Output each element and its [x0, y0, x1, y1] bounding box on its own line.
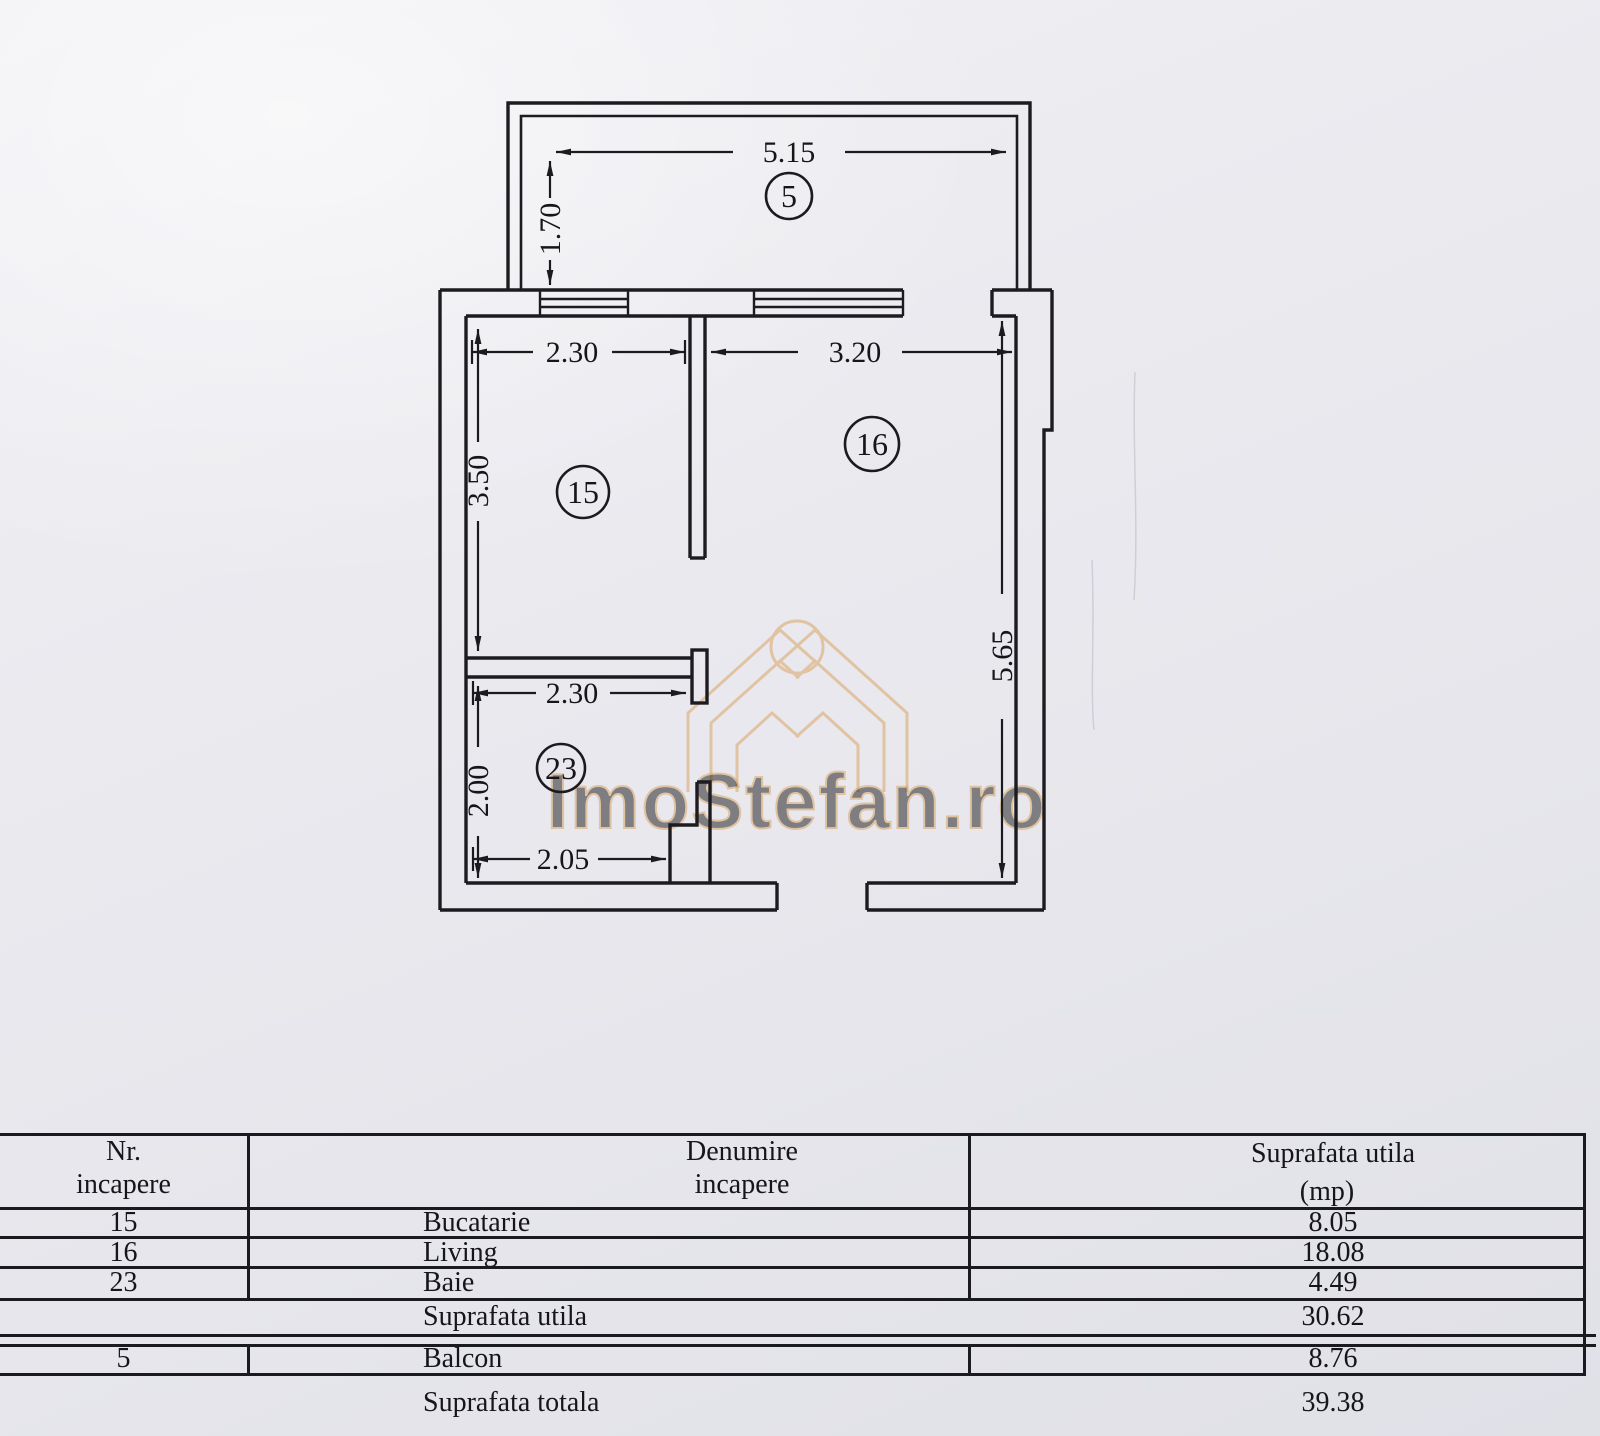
row-name: Balcon [423, 1344, 923, 1374]
room-label-bath: 23 [545, 750, 577, 786]
header-denumire-line2: incapere [542, 1170, 942, 1200]
table-gridline [247, 1133, 250, 1298]
scan-crease-lines [1092, 372, 1136, 730]
header-nr-line1: Nr. [0, 1137, 247, 1167]
row-area: 4.49 [1133, 1268, 1533, 1298]
floor-plan-drawing: ImoStefan.ro [0, 0, 1600, 1130]
header-mp: (mp) [1127, 1177, 1527, 1207]
row-nr: 15 [0, 1208, 247, 1238]
dim-bath-bottom-width: 2.05 [537, 843, 590, 876]
header-denumire-line1: Denumire [542, 1137, 942, 1167]
window-symbols [540, 290, 903, 316]
balcony-walls [508, 103, 1030, 290]
table-gridline [247, 1344, 250, 1373]
dim-kitchen-depth: 3.50 [462, 455, 495, 508]
table-gridline [0, 1334, 1596, 1337]
subtotal-label: Suprafata utila [423, 1302, 923, 1332]
watermark-text: ImoStefan.ro [547, 757, 1048, 845]
dim-living-width: 3.20 [829, 336, 882, 369]
window-kitchen [540, 290, 628, 316]
subtotal-value: 30.62 [1133, 1302, 1533, 1332]
row-name: Baie [423, 1268, 923, 1298]
row-nr: 16 [0, 1238, 247, 1268]
row-nr: 5 [0, 1344, 247, 1374]
room-label-balcony: 5 [781, 178, 797, 214]
row-name: Bucatarie [423, 1208, 923, 1238]
window-living [754, 290, 903, 316]
row-nr: 23 [0, 1268, 247, 1298]
dim-kitchen-width: 2.30 [546, 336, 599, 369]
header-nr-line2: incapere [0, 1170, 247, 1200]
scanned-floor-plan-sheet: ImoStefan.ro [0, 0, 1600, 1436]
row-area: 8.76 [1133, 1344, 1533, 1374]
room-label-living: 16 [856, 426, 888, 462]
room-label-kitchen: 15 [567, 474, 599, 510]
row-name: Living [423, 1238, 923, 1268]
total-value: 39.38 [1133, 1388, 1533, 1418]
header-suprafata: Suprafata utila [1133, 1139, 1533, 1169]
table-gridline [968, 1344, 971, 1373]
dim-balcony-width: 5.15 [763, 136, 816, 169]
dim-bath-depth: 2.00 [462, 765, 495, 818]
table-gridline [968, 1133, 971, 1298]
dim-balcony-depth: 1.70 [534, 203, 567, 256]
row-area: 8.05 [1133, 1208, 1533, 1238]
dim-living-depth: 5.65 [986, 630, 1019, 683]
table-gridline [1583, 1133, 1586, 1376]
row-area: 18.08 [1133, 1238, 1533, 1268]
dim-bath-width: 2.30 [546, 677, 599, 710]
total-label: Suprafata totala [423, 1388, 923, 1418]
